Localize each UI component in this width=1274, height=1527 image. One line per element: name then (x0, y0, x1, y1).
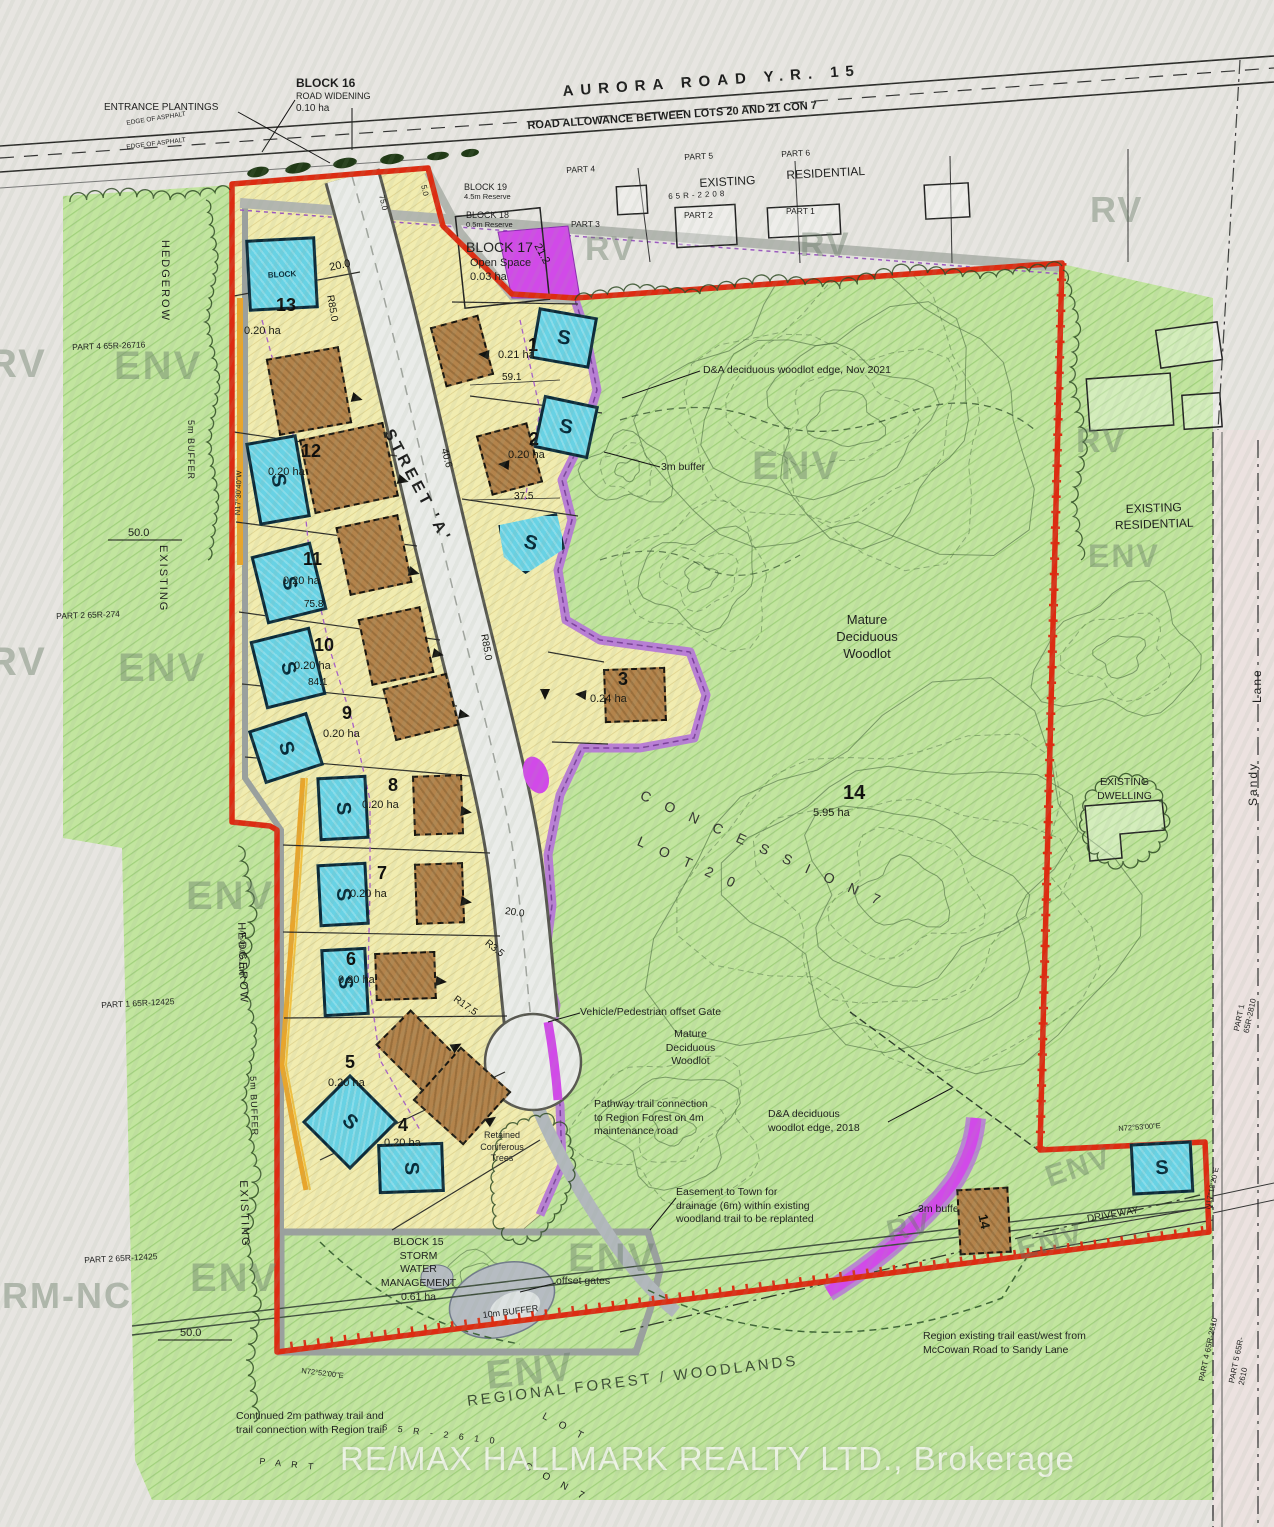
septic-area-marker: S (530, 307, 598, 369)
lot-area: 0.20 ha (328, 1076, 365, 1090)
lot-number: 5 (345, 1051, 355, 1074)
dimension-label: 21.2 (530, 241, 553, 267)
map-label: Mature Deciduous Woodlot (812, 612, 922, 663)
lot-area: 0.20 ha (268, 465, 305, 479)
map-label: 50.0 (180, 1326, 201, 1340)
lot-area: 0.20 ha (244, 324, 281, 338)
dimension-label: R17.5 (451, 993, 480, 1019)
map-label: ROAD ALLOWANCE BETWEEN LOTS 20 AND 21 CO… (527, 99, 817, 133)
dimension-label: 20.0 (328, 257, 352, 275)
map-label: ENTRANCE PLANTINGS (104, 101, 218, 114)
map-label: ROAD WIDENING (296, 91, 371, 103)
building-envelope (266, 346, 352, 436)
map-label: N17°30'40"W (233, 470, 244, 515)
label-layer: ENVRVENVRVENVENVENVENVENVENVENVENVRVRVRV… (0, 0, 1274, 1527)
s-label: S (273, 738, 299, 758)
map-label: BLOCK 16 (296, 76, 355, 92)
driveway-arrow (575, 689, 587, 700)
lot-number: 14 (843, 780, 865, 806)
lot-area: 0.20 ha (384, 1136, 421, 1150)
map-label: Open Space 0.03 ha (470, 256, 531, 285)
driveway-arrow (458, 709, 471, 721)
zoning-watermark: RV (0, 344, 47, 384)
map-label: DRIVEWAY (1086, 1204, 1140, 1226)
building-envelope (374, 951, 437, 1001)
s-label: S (399, 1161, 422, 1175)
lot-area: 0.20 ha (350, 887, 387, 901)
map-label: EXISTING RESIDENTIAL (1096, 499, 1212, 534)
zoning-watermark: ENV (118, 648, 206, 688)
map-label: EXISTING (156, 545, 170, 612)
lot-number: 10 (314, 634, 334, 657)
driveway-arrow (436, 976, 448, 987)
zoning-watermark: ENV (186, 876, 274, 916)
building-envelope (382, 673, 459, 741)
driveway-arrow (432, 648, 445, 660)
zoning-watermark: RV (1090, 192, 1143, 228)
zoning-watermark: ENV (190, 1258, 278, 1298)
zoning-watermark: RV (585, 232, 636, 266)
zoning-watermark: ENV (568, 1238, 656, 1278)
s-label: S (337, 1109, 363, 1135)
map-label: Region existing trail east/west from McC… (923, 1330, 1086, 1357)
driveway-arrow (498, 459, 510, 470)
map-label: PART 5 (684, 150, 713, 163)
map-label: 5m BUFFER (184, 420, 196, 480)
map-label: P A R T (259, 1456, 318, 1474)
lot-area: 0.24 ha (590, 692, 627, 706)
map-label: EXISTING DWELLING (1082, 776, 1167, 803)
map-label: 4.5m Reserve (464, 192, 511, 202)
map-label: Vehicle/Pedestrian offset Gate (580, 1006, 721, 1020)
map-label: Continued 2m pathway trail and trail con… (236, 1410, 384, 1437)
s-label: S (1155, 1156, 1170, 1180)
map-label: HEDGEROW (158, 240, 172, 322)
map-label: PART 2 (684, 210, 713, 221)
lot-number: 13 (276, 294, 296, 317)
map-label: AURORA ROAD Y.R. 15 (562, 61, 862, 101)
dimension-label: 37.5 (514, 490, 533, 503)
zoning-watermark: ENV (114, 346, 202, 386)
zoning-watermark: ENV (1088, 540, 1160, 572)
s-label: S (557, 414, 575, 439)
map-label: PART 1 65R-12425 (101, 996, 175, 1011)
map-label: 0.10 ha (296, 102, 329, 115)
map-label: PART 4 (566, 163, 595, 176)
map-label: Easement to Town for drainage (6m) withi… (676, 1186, 814, 1227)
dimension-label: 59.1 (502, 371, 521, 384)
dimension-label: R85.0 (477, 633, 494, 662)
map-label: PART 3 (571, 219, 600, 230)
building-envelope (299, 422, 399, 514)
lot-number: 8 (388, 774, 398, 797)
map-label: N17°18'20"E (1203, 1166, 1221, 1210)
map-label: N72°52'00"E (301, 1366, 344, 1381)
map-label: Retained Coniferous Trees (470, 1130, 534, 1165)
building-envelope (358, 606, 435, 686)
zoning-watermark: ENV (1014, 1220, 1087, 1265)
lot-number: 4 (398, 1114, 408, 1137)
map-label: PART 2 65R-274 (56, 609, 120, 622)
s-label: S (331, 801, 355, 816)
zoning-watermark: RV (1076, 424, 1127, 458)
driveway-arrow (460, 806, 472, 817)
map-label: BLOCK 17 (466, 238, 533, 256)
map-label: PART 2 65R-12425 (84, 1251, 158, 1266)
building-envelope: 14 (956, 1187, 1011, 1256)
building-envelope (335, 514, 412, 596)
lot-area: 0.20 ha (362, 798, 399, 812)
building-envelope (412, 774, 464, 836)
lot-area: 0.20 ha (338, 973, 375, 987)
septic-area-marker: S (497, 513, 565, 574)
brokerage-watermark: RE/MAX HALLMARK REALTY LTD., Brokerage (340, 1440, 1075, 1478)
envelope-label: 14 (975, 1212, 993, 1229)
dimension-label: 84.1 (308, 676, 327, 689)
map-label: D&A deciduous woodlot edge, Nov 2021 (703, 364, 891, 378)
map-label: 3m buffer (661, 461, 705, 475)
s-label: S (522, 531, 541, 557)
building-envelope (414, 862, 465, 925)
map-label: BLOCK 15 STORM WATER MANAGEMENT 0.61 ha (366, 1236, 471, 1304)
map-label: Pathway trail connection to Region Fores… (594, 1098, 708, 1139)
driveway-arrow (478, 349, 490, 360)
zoning-watermark: ENV (1042, 1143, 1116, 1192)
dimension-label: 75.0 (376, 194, 389, 211)
map-label: EDGE OF ASPHALT (126, 137, 186, 153)
zoning-watermark: RV (0, 642, 47, 682)
map-label: PART 1 (786, 206, 815, 217)
lot-number: 9 (342, 702, 352, 725)
map-label: RESIDENTIAL (786, 164, 865, 184)
dimension-label: R85.0 (323, 294, 340, 323)
map-label: PART 5 65R-2610 (1227, 1336, 1257, 1386)
septic-area-marker: S (248, 712, 324, 784)
dimension-label: 5.0 (418, 184, 430, 197)
dimension-label: 20.0 (504, 905, 525, 921)
map-label: 5m BUFFER (246, 1076, 260, 1136)
map-label: 50.0 (128, 526, 149, 540)
lot-area: 0.20 ha (508, 448, 545, 462)
driveway-arrow (351, 392, 364, 405)
map-label: Sandy (1246, 762, 1262, 806)
map-label: Mature Deciduous Woodlot (643, 1028, 738, 1069)
map-label: 3m buffer (918, 1203, 962, 1217)
septic-area-marker: S (1130, 1140, 1195, 1195)
map-label: N17°30'40"W (237, 930, 248, 975)
map-label: D&A deciduous woodlot edge, 2018 (768, 1108, 860, 1135)
driveway-arrow (460, 896, 472, 907)
dimension-label: 40.6 (437, 447, 455, 469)
map-label: PART 4 65R-2610 (1197, 1317, 1221, 1382)
site-plan: ENVRVENVRVENVENVENVENVENVENVENVENVRVRVRV… (0, 0, 1274, 1527)
zoning-watermark: RV (800, 228, 851, 262)
dimension-label: 75.8 (304, 598, 323, 611)
lot-area: 0.20 ha (294, 659, 331, 673)
lot-area: 0.21 ha (498, 348, 535, 362)
map-label: Lane (1250, 668, 1266, 703)
lot-number: 7 (377, 862, 387, 885)
driveway-arrow (540, 689, 550, 700)
map-label: PART 6 (781, 147, 810, 160)
map-label: EXISTING (699, 173, 756, 192)
map-label: EXISTING (236, 1180, 253, 1248)
zoning-watermark: ENV (752, 446, 840, 486)
map-label: PART 1 65R-2810 (1232, 989, 1261, 1034)
lot-area: 5.95 ha (813, 806, 850, 820)
dimension-label: R3.5 (482, 937, 507, 960)
map-label: N72°53'00"E (1118, 1121, 1161, 1134)
lot-area: 0.20 ha (323, 727, 360, 741)
lot-area: 0.20 ha (283, 574, 320, 588)
block-label: BLOCK (268, 269, 297, 279)
lot-number: 6 (346, 948, 356, 971)
map-label: 0.5m Reserve (466, 220, 513, 230)
map-label: 10m BUFFER (482, 1303, 539, 1321)
map-label: 65R-2208 (668, 189, 728, 202)
lot-number: 3 (618, 668, 628, 691)
lot-number: 12 (301, 440, 321, 463)
zoning-watermark: RM-NC (2, 1278, 132, 1314)
lot-number: 11 (303, 548, 322, 571)
map-label: offset gates (556, 1275, 610, 1289)
s-label: S (555, 326, 572, 351)
